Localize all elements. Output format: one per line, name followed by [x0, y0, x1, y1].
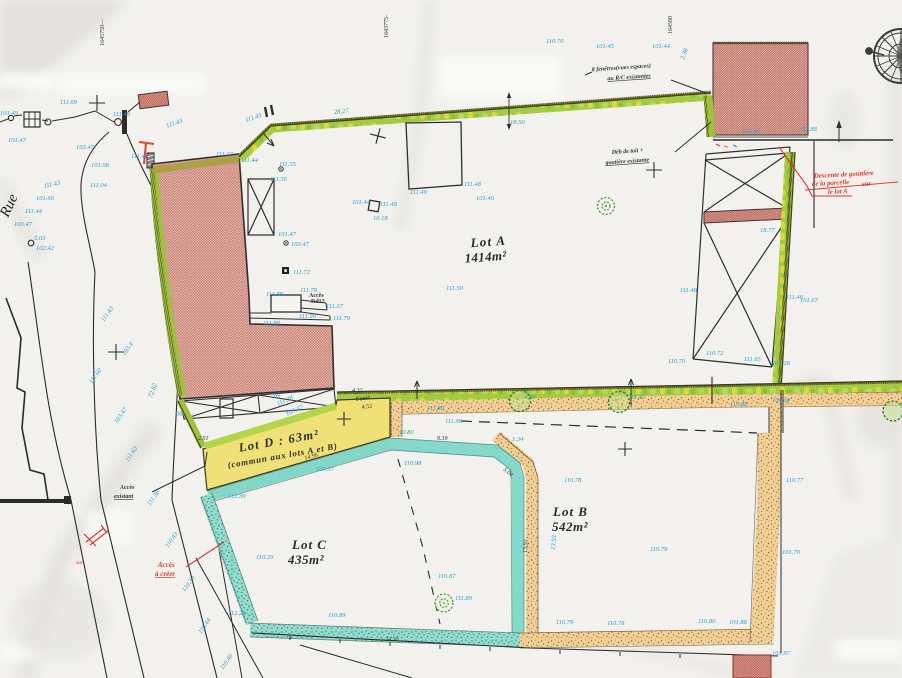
svg-text:111.48: 111.48 [131, 153, 149, 160]
svg-text:101.44: 101.44 [652, 43, 671, 50]
svg-text:111.79: 111.79 [333, 315, 351, 322]
svg-text:111.44: 111.44 [241, 157, 259, 164]
svg-text:101.28: 101.28 [772, 360, 791, 367]
svg-text:110.78: 110.78 [564, 477, 582, 484]
svg-text:111.72: 111.72 [293, 269, 311, 276]
svg-text:102.42: 102.42 [36, 245, 55, 252]
svg-text:101.70: 101.70 [782, 549, 801, 556]
svg-text:18.77: 18.77 [760, 227, 775, 234]
svg-text:101.47: 101.47 [8, 137, 27, 144]
svg-text:111.04: 111.04 [90, 182, 108, 189]
svg-text:existant: existant [114, 494, 134, 500]
svg-text:1645750—: 1645750— [100, 18, 106, 46]
svg-text:Lot B: Lot B [552, 504, 588, 519]
svg-text:Lot C: Lot C [291, 537, 327, 552]
svg-text:111.49: 111.49 [380, 201, 398, 208]
svg-text:110.77: 110.77 [786, 477, 804, 484]
svg-text:111.88: 111.88 [263, 320, 281, 327]
svg-text:111.79: 111.79 [300, 287, 318, 294]
svg-text:110.98: 110.98 [404, 460, 422, 467]
svg-text:111.50: 111.50 [446, 285, 464, 292]
svg-text:110.87: 110.87 [438, 573, 456, 580]
svg-text:111.48: 111.48 [680, 287, 698, 294]
svg-text:101.45: 101.45 [596, 43, 615, 50]
svg-text:111.44: 111.44 [25, 208, 43, 215]
svg-text:10.18: 10.18 [373, 215, 388, 222]
svg-text:sur: sur [76, 560, 84, 566]
svg-text:110.78: 110.78 [607, 620, 625, 627]
svg-text:111.49: 111.49 [410, 189, 428, 196]
svg-text:111.99: 111.99 [299, 313, 317, 320]
svg-text:101.45: 101.45 [742, 128, 761, 135]
svg-text:101.08: 101.08 [91, 162, 110, 169]
svg-text:111.37: 111.37 [326, 303, 344, 310]
svg-text:101.49: 101.49 [0, 110, 19, 117]
svg-text:2.51: 2.51 [198, 436, 209, 442]
svg-text:28.45: 28.45 [630, 394, 645, 401]
svg-text:110.70: 110.70 [668, 358, 686, 365]
svg-text:110.29: 110.29 [256, 554, 274, 561]
svg-text:111.47: 111.47 [216, 151, 234, 158]
svg-text:112.39: 112.39 [228, 493, 246, 500]
svg-text:435m²: 435m² [287, 552, 325, 567]
svg-text:13.93: 13.93 [523, 539, 529, 553]
svg-text:164580: 164580 [668, 16, 674, 34]
svg-text:101.60: 101.60 [36, 195, 55, 202]
svg-text:le lot A: le lot A [828, 188, 849, 196]
svg-text:111.96: 111.96 [445, 418, 463, 425]
svg-text:110.70: 110.70 [546, 38, 564, 45]
svg-text:112.28: 112.28 [228, 610, 246, 617]
svg-text:103.47: 103.47 [76, 144, 95, 151]
svg-text:18.50: 18.50 [510, 119, 525, 126]
svg-text:111.56: 111.56 [270, 176, 288, 183]
svg-text:103.47: 103.47 [14, 221, 33, 228]
svg-text:111.49: 111.49 [113, 111, 131, 118]
svg-text:111.55: 111.55 [279, 161, 297, 168]
svg-text:Rd12: Rd12 [311, 299, 325, 305]
svg-text:103.47: 103.47 [291, 241, 310, 248]
svg-text:110.72: 110.72 [706, 350, 724, 357]
svg-text:110.89: 110.89 [328, 612, 346, 619]
svg-text:9.39: 9.39 [437, 436, 448, 442]
svg-text:24.30: 24.30 [385, 636, 399, 643]
svg-text:103.37: 103.37 [316, 466, 335, 473]
svg-text:101.40: 101.40 [476, 195, 495, 202]
svg-text:111.48: 111.48 [464, 181, 482, 188]
svg-text:4.32: 4.32 [352, 387, 363, 394]
svg-text:110.88: 110.88 [730, 401, 748, 408]
svg-text:542m²: 542m² [552, 519, 589, 534]
svg-text:111.88: 111.88 [266, 291, 284, 298]
svg-text:101.67: 101.67 [800, 297, 819, 304]
svg-text:111.88: 111.88 [800, 126, 818, 133]
svg-text:à créer: à créer [155, 570, 175, 578]
svg-text:4.80: 4.80 [524, 394, 536, 401]
svg-text:1.34: 1.34 [512, 436, 524, 443]
svg-text:Accès: Accès [157, 561, 175, 569]
svg-text:111.65: 111.65 [744, 356, 762, 363]
svg-text:101.97: 101.97 [772, 650, 791, 657]
svg-text:111.80: 111.80 [427, 405, 445, 412]
svg-text:110.80: 110.80 [698, 618, 716, 625]
svg-text:110.79: 110.79 [556, 619, 574, 626]
svg-text:28.27: 28.27 [334, 108, 350, 116]
svg-text:5.03: 5.03 [34, 235, 46, 242]
svg-text:1414m²: 1414m² [464, 248, 508, 266]
svg-text:1643775-: 1643775- [384, 15, 390, 38]
svg-text:101.88: 101.88 [729, 619, 748, 626]
svg-text:111.89: 111.89 [455, 595, 473, 602]
svg-text:110.79: 110.79 [650, 546, 668, 553]
svg-text:13.93: 13.93 [550, 534, 558, 550]
svg-text:101.04: 101.04 [772, 397, 791, 404]
svg-text:10.80: 10.80 [399, 429, 414, 436]
svg-text:Accès: Accès [119, 485, 135, 491]
svg-text:111.69: 111.69 [60, 99, 78, 106]
svg-text:101.47: 101.47 [278, 231, 297, 238]
svg-text:101.44: 101.44 [352, 199, 371, 206]
